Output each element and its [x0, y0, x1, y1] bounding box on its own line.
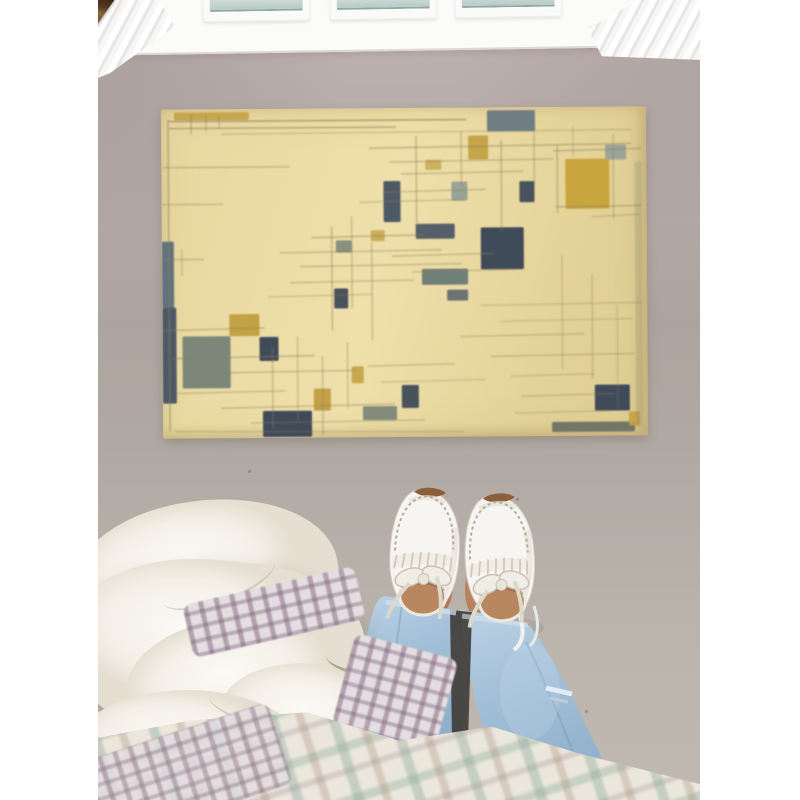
knee-highlight	[500, 644, 560, 740]
photo-with-white-margins	[0, 0, 800, 800]
photo	[98, 0, 700, 800]
